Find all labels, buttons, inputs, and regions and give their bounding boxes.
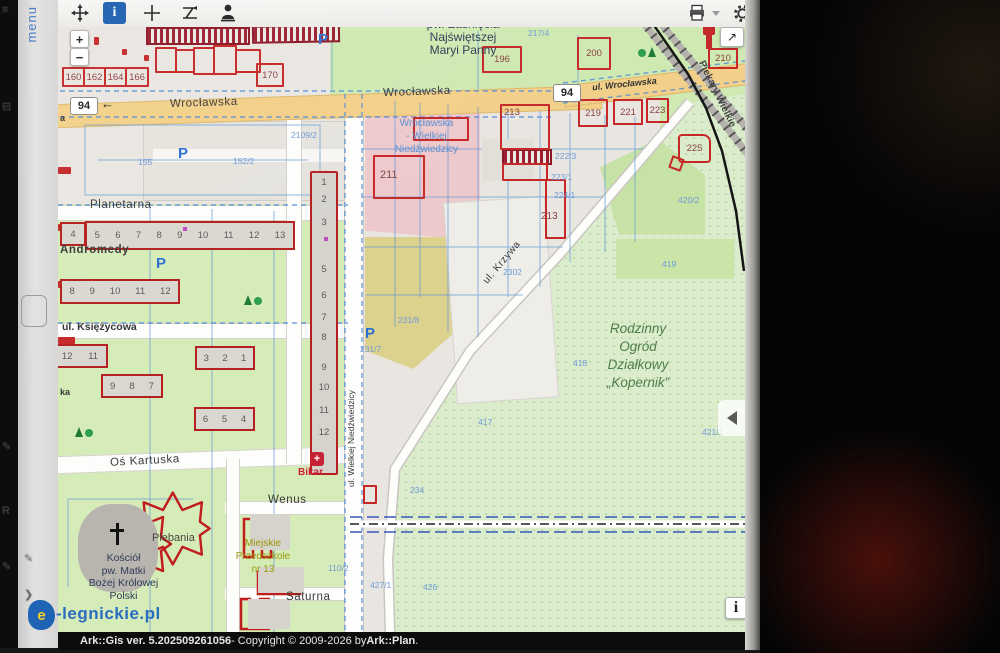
red-dot xyxy=(94,37,99,45)
pink-zone-label: Wrocławska- WielkiejNiedźwiedzicy xyxy=(374,117,479,156)
street-label-planetarna: Planetarna xyxy=(90,199,152,211)
parcel-160: 160 xyxy=(62,67,85,87)
street-label-wroclawska-2: Wrocławska xyxy=(383,85,451,99)
parcel-210: 210 xyxy=(708,48,738,69)
pharmacy-name-label: Bikar xyxy=(298,467,323,478)
statusbar: Ark::Gis ver. 5.202509261056 - Copyright… xyxy=(58,632,760,650)
photo-of-screen: ≡ ⊟ ✎ R ✎ menu ✎ ❯ i xyxy=(0,0,1000,653)
tree-icons xyxy=(638,45,658,59)
street-label-wenus: Wenus xyxy=(268,494,307,506)
parcel-162: 162 xyxy=(83,67,106,87)
block-4: 4 xyxy=(60,222,86,246)
tree-icons xyxy=(75,425,95,439)
church-name-label: Kościółpw. MatkiBożej KrólowejPolski xyxy=(66,552,181,602)
block-6-5-4: 654 xyxy=(194,407,255,431)
parcel-211-label: 211 xyxy=(380,169,398,181)
street-label-saturna: Saturna xyxy=(286,591,330,603)
parcel-num-110-2: 110/2 xyxy=(328,563,349,573)
map-canvas[interactable]: 160 162 164 166 170 196 200 210 211 213 … xyxy=(58,27,745,632)
map-zoom-out-button[interactable]: − xyxy=(70,48,89,66)
parcel-num-155: 155 xyxy=(138,157,152,167)
allotment-garden-label: RodzinnyOgródDziałkowy„Kopernik” xyxy=(563,320,713,392)
left-sidebar: menu ✎ ❯ xyxy=(18,0,58,648)
preschool-label: MiejskiePrzedszkolenr 13 xyxy=(226,537,300,576)
street-label-niedzwiedzicy: ul. Wielkiej Niedźwiedzicy xyxy=(346,277,361,487)
parcel-223: 223 xyxy=(646,98,669,123)
road-shield-94-west: 94 xyxy=(70,97,98,115)
parcel-166: 166 xyxy=(125,67,149,87)
street-label-wroclawska-1: Wrocławska xyxy=(170,96,238,110)
triangle-left-icon xyxy=(727,411,737,425)
app-version-text: Ark::Gis ver. 5.202509261056 xyxy=(80,635,231,647)
parcel-num-217-4: 217/4 xyxy=(528,28,549,38)
parking-icon: P xyxy=(156,255,166,272)
parcel-219: 219 xyxy=(578,99,608,127)
parcel-170: 170 xyxy=(256,63,284,87)
tree-icons xyxy=(244,293,264,307)
small-red-box xyxy=(363,485,377,504)
parcel-num-234: 234 xyxy=(410,485,424,495)
desktop-edge-strip: ≡ ⊟ ✎ R ✎ xyxy=(0,0,18,653)
parcel-num-418: 418 xyxy=(573,358,587,368)
desktop-icon: R xyxy=(2,505,10,517)
parking-icon: P xyxy=(178,145,188,162)
identify-tool-button-active[interactable]: i xyxy=(103,2,126,24)
road-shield-94-east: 94 xyxy=(553,84,581,102)
street-label-cut-a: a xyxy=(60,113,65,123)
desktop-icon: ✎ xyxy=(2,440,11,453)
garage-row-hatched xyxy=(146,27,250,45)
parcel-num-417: 417 xyxy=(478,417,492,427)
map-info-button[interactable]: i xyxy=(725,597,745,619)
garage-box xyxy=(193,47,215,75)
street-label-ksiezycowa: ul. Księżycowa xyxy=(62,321,137,333)
sidebar-icon[interactable]: ✎ xyxy=(24,552,33,565)
tower-block: 1 2 3 5 6 7 8 9 10 11 12 xyxy=(310,171,338,475)
parcel-num-231-8: 231/8 xyxy=(398,315,419,325)
parcel-164: 164 xyxy=(104,67,127,87)
fullscreen-arrow-button[interactable]: ↗ xyxy=(720,27,744,47)
chevron-down-icon[interactable] xyxy=(712,11,720,16)
crosshair-tool-icon[interactable] xyxy=(142,3,162,23)
desktop-icon: ✎ xyxy=(2,560,11,573)
parcel-num-152-2: 152/2 xyxy=(233,156,254,166)
desktop-icon: ⊟ xyxy=(2,100,11,113)
street-label-cut-ka: ka xyxy=(60,387,70,397)
red-flag-poi xyxy=(703,27,717,51)
print-icon[interactable] xyxy=(686,2,708,24)
block-9-8-7: 987 xyxy=(101,374,163,398)
map-zoom-in-button[interactable]: + xyxy=(70,30,89,48)
garage-box xyxy=(175,49,195,73)
pharmacy-cross-icon: + xyxy=(310,452,324,466)
parcel-num-2302: 2302 xyxy=(503,267,522,277)
parcel-213b-outline xyxy=(545,179,566,239)
brand-text: Ark::Plan xyxy=(366,635,415,647)
identify-i-glyph: i xyxy=(113,5,117,21)
person-marker-tool-icon[interactable] xyxy=(218,2,238,24)
parcel-num-2109-2: 2109/2 xyxy=(291,130,317,140)
street-label-andromedy: Andromedy xyxy=(60,244,129,256)
parcel-num-427-1: 427/1 xyxy=(370,580,391,590)
pan-tool-icon[interactable] xyxy=(70,3,90,23)
parcel-num-419: 419 xyxy=(662,259,676,269)
red-dot xyxy=(122,49,127,55)
desktop-icon: ≡ xyxy=(2,4,8,16)
gis-toolbar: i xyxy=(58,0,745,28)
church-north-label: pw. ZaśnięciaNajświętszejMaryi Panny xyxy=(393,27,533,57)
magenta-marker xyxy=(324,237,328,241)
magenta-marker xyxy=(183,227,187,231)
edge-building-stub xyxy=(58,337,75,344)
parcel-221: 221 xyxy=(613,99,643,125)
measure-tool-icon[interactable] xyxy=(180,3,200,23)
parcel-213b-label: 213 xyxy=(541,211,558,222)
copyright-text: - Copyright © 2009-2026 by xyxy=(231,635,366,647)
building-gray xyxy=(248,599,290,629)
parcel-num-420-2: 420/2 xyxy=(678,195,699,205)
e-legnickie-logo-icon: e xyxy=(28,600,55,630)
church-cross-icon xyxy=(110,523,124,545)
sidebar-slot[interactable] xyxy=(21,295,47,327)
garage-box xyxy=(155,47,177,73)
parking-icon: P xyxy=(318,31,328,48)
arrow-left-icon: ← xyxy=(101,96,114,111)
block-12-11: 1211 xyxy=(58,344,108,368)
screen-bezel-right xyxy=(745,0,760,650)
panel-collapse-button[interactable] xyxy=(718,400,745,436)
parcel-200: 200 xyxy=(577,37,611,70)
building-outline xyxy=(502,163,548,181)
garage-box xyxy=(213,45,237,75)
menu-vertical-label[interactable]: menu xyxy=(24,6,39,43)
parcel-num-224-1: 224/1 xyxy=(554,190,575,200)
dark-background-right xyxy=(758,0,1000,653)
block-row-andromedy: 89101112 xyxy=(60,279,180,304)
parcel-num-223-1: 223/1 xyxy=(551,172,572,182)
red-dot xyxy=(144,55,149,61)
rectory-label: Plebania xyxy=(152,532,195,544)
parcel-num-222-3: 222/3 xyxy=(555,151,576,161)
e-legnickie-logo-text: -legnickie.pl xyxy=(56,604,161,624)
parcel-num-426: 426 xyxy=(423,582,437,592)
parcel-213a: 213 xyxy=(500,104,550,150)
parcel-num-231-7: 231/7 xyxy=(360,344,381,354)
edge-building-stub xyxy=(58,167,71,174)
sidebar-icon[interactable]: ❯ xyxy=(24,588,33,601)
block-3-2-1: 321 xyxy=(195,346,255,370)
parking-icon: P xyxy=(365,325,375,342)
